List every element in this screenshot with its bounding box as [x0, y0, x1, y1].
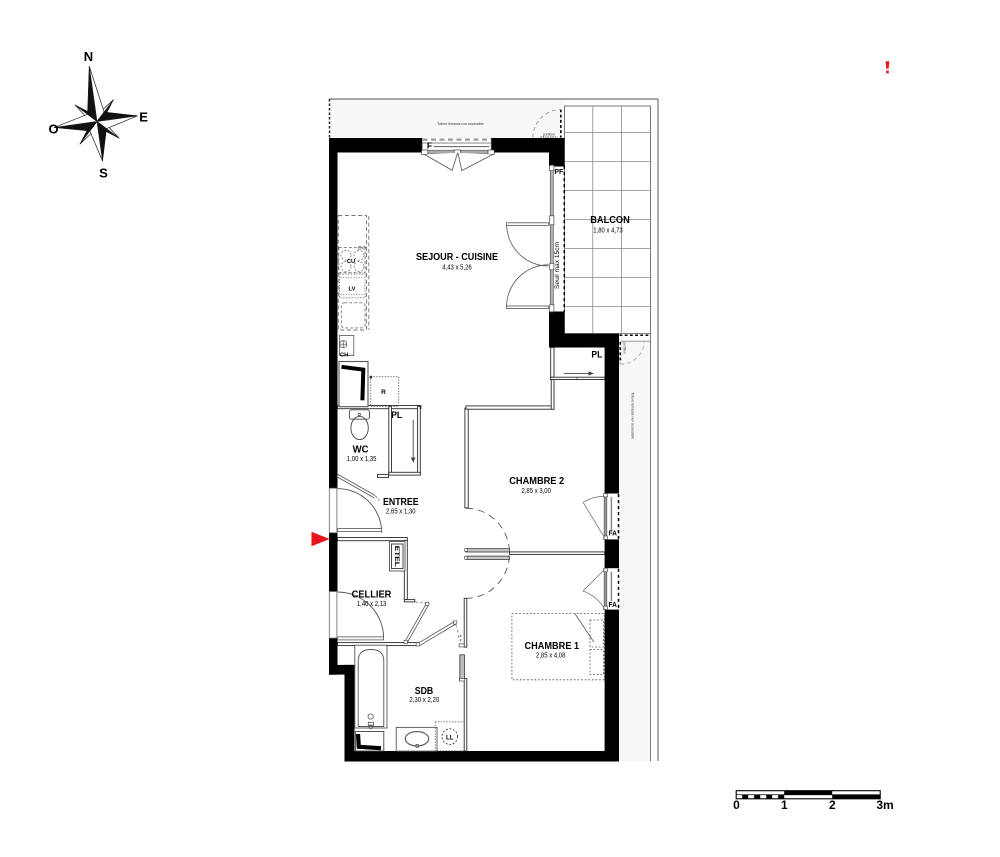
- svg-text:FA: FA: [609, 600, 617, 609]
- svg-text:CHAMBRE 2: CHAMBRE 2: [509, 475, 564, 487]
- svg-text:1: 1: [781, 798, 788, 812]
- svg-text:2: 2: [829, 798, 836, 812]
- svg-text:3m: 3m: [876, 798, 893, 812]
- svg-text:FA: FA: [609, 529, 617, 538]
- svg-text:ENTREE: ENTREE: [383, 496, 419, 508]
- svg-text:CH: CH: [340, 353, 348, 359]
- svg-text:R: R: [381, 389, 386, 396]
- svg-text:N: N: [84, 49, 93, 64]
- svg-text:Seuil max 15cm: Seuil max 15cm: [555, 242, 561, 289]
- svg-text:ETEL: ETEL: [393, 546, 400, 567]
- svg-text:portillon: portillon: [623, 342, 627, 354]
- svg-text:Toiture terrasse non accessibl: Toiture terrasse non accessible: [631, 392, 635, 439]
- svg-text:CU: CU: [347, 259, 355, 265]
- svg-text:WC: WC: [353, 443, 369, 455]
- svg-text:2,30 x 2,20: 2,30 x 2,20: [409, 697, 439, 704]
- svg-text:1,40 x 2,13: 1,40 x 2,13: [357, 601, 387, 608]
- svg-text:CELLIER: CELLIER: [352, 589, 392, 601]
- svg-text:0: 0: [733, 798, 740, 812]
- svg-text:BALCON: BALCON: [590, 214, 630, 226]
- svg-text:LV: LV: [349, 287, 356, 293]
- svg-text:SDB: SDB: [415, 685, 434, 697]
- svg-text:Toiture terrasse non accessibl: Toiture terrasse non accessible: [437, 122, 484, 126]
- svg-text:E: E: [139, 110, 148, 125]
- svg-text:CHAMBRE 1: CHAMBRE 1: [525, 640, 580, 652]
- svg-text:portillon: portillon: [543, 133, 555, 137]
- svg-text:F: F: [427, 141, 432, 151]
- svg-text:4,43 x 5,26: 4,43 x 5,26: [442, 264, 472, 271]
- svg-text:2,65 x 1,30: 2,65 x 1,30: [386, 509, 416, 516]
- svg-text:PL: PL: [591, 349, 602, 360]
- svg-text:O: O: [48, 122, 58, 137]
- svg-text:SEJOUR - CUISINE: SEJOUR - CUISINE: [416, 251, 498, 263]
- svg-text:S: S: [99, 166, 108, 181]
- svg-text:PL: PL: [391, 410, 402, 421]
- svg-text:LL: LL: [446, 734, 454, 741]
- svg-text:2,85 x 3,00: 2,85 x 3,00: [521, 488, 551, 495]
- svg-text:1,00 x 1,35: 1,00 x 1,35: [347, 456, 377, 463]
- svg-text:PF: PF: [554, 167, 563, 176]
- svg-text:2,85 x 4,08: 2,85 x 4,08: [536, 652, 566, 659]
- svg-text:1,80 x 4,73: 1,80 x 4,73: [593, 228, 623, 235]
